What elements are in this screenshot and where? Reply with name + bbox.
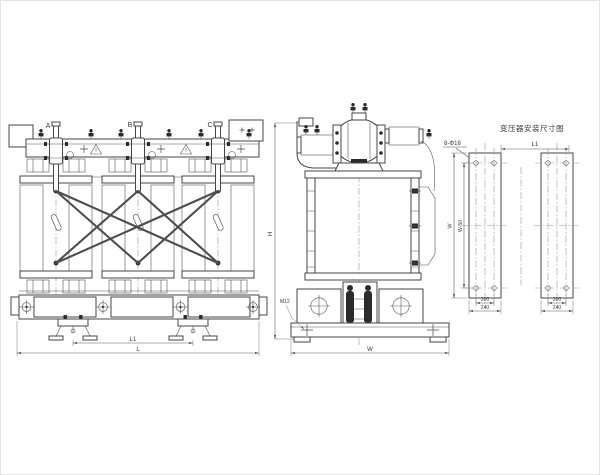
phase-label-b: B — [128, 122, 133, 129]
insulator-right — [389, 127, 419, 145]
top-flange — [305, 171, 421, 178]
base-plate — [291, 323, 449, 337]
phase-label-a: A — [46, 123, 51, 130]
support-bracket — [419, 187, 435, 265]
lifting-lug — [299, 118, 313, 126]
rail-left — [307, 178, 315, 273]
insulator-left — [301, 135, 333, 155]
dim-w: W — [367, 347, 373, 353]
foot-box — [34, 297, 96, 317]
side-base — [291, 282, 449, 342]
base-assembly — [11, 291, 267, 340]
bottom-flange — [305, 273, 421, 280]
bolt-label: M12 — [280, 299, 290, 305]
drawing-sheet: 200 240 A B C — [0, 0, 600, 475]
mounting-rail-left — [462, 143, 508, 314]
dim-l1: L1 — [130, 337, 137, 343]
foot-box — [111, 297, 173, 317]
right-terminal-box — [229, 120, 263, 141]
ground-strap — [421, 141, 435, 191]
phase-label-c: C — [207, 122, 212, 129]
side-view: M12 W — [280, 103, 449, 356]
dim-l1-detail: L1 — [532, 142, 539, 148]
holes-label: 8-Φ18 — [444, 141, 461, 147]
dim-l: L — [136, 347, 140, 353]
foot-box — [188, 297, 250, 317]
detail-view: 变压器安装尺寸图 8-Φ18 L1 W W-50 — [443, 123, 580, 314]
front-view: A B C — [9, 120, 301, 356]
dim-w50: W-50 — [458, 220, 464, 232]
fin-body — [315, 178, 411, 273]
dim-h: H — [268, 232, 274, 236]
engineering-drawing: 200 240 A B C — [1, 1, 599, 474]
winding-stack — [305, 171, 435, 280]
mounting-rail-right — [534, 143, 580, 314]
cross-brace-rods — [56, 191, 218, 263]
dim-w-detail: W — [448, 223, 454, 229]
detail-title: 变压器安装尺寸图 — [500, 123, 564, 133]
